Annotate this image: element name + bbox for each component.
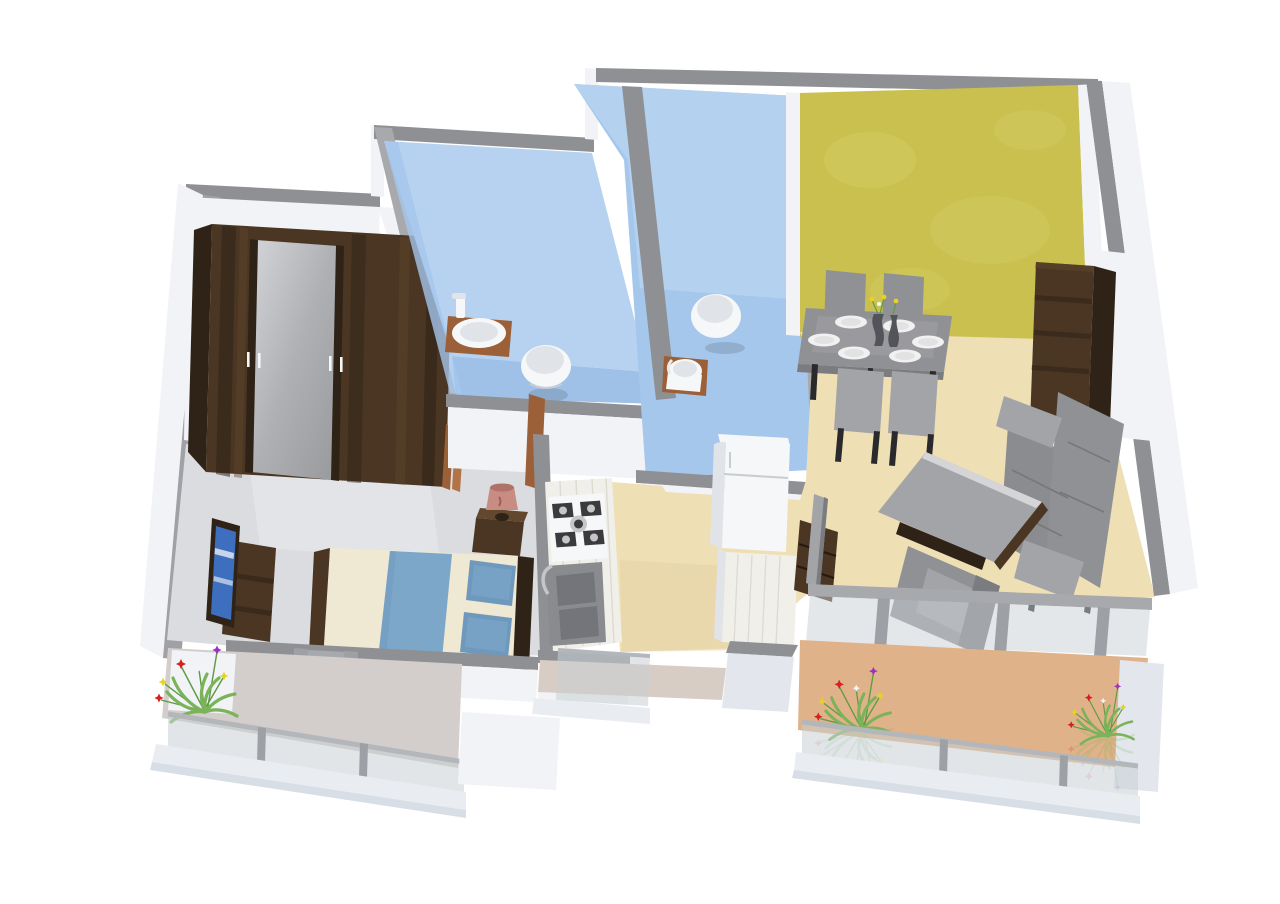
balcony-left xyxy=(150,646,466,819)
basin-faucet xyxy=(456,296,465,318)
divider-block xyxy=(458,712,560,790)
railing-post xyxy=(359,743,368,778)
wardrobe-mirror xyxy=(251,240,338,480)
balcony-right xyxy=(792,640,1164,824)
service-counter xyxy=(714,548,798,646)
wardrobe-handle xyxy=(329,356,332,371)
dining-chair xyxy=(888,371,938,437)
railing-post xyxy=(257,727,266,762)
kitchen-sink xyxy=(543,562,606,646)
washbasin-stand xyxy=(662,356,708,396)
dining-chair xyxy=(834,368,884,434)
railing-post xyxy=(939,739,948,776)
railing-post xyxy=(1059,755,1068,790)
wardrobe-handle xyxy=(247,352,250,367)
wardrobe-handle xyxy=(258,353,261,368)
wardrobe-handle xyxy=(340,357,343,372)
gas-hob xyxy=(548,493,608,562)
wardrobe xyxy=(188,224,452,487)
toilet xyxy=(521,345,571,402)
refrigerator xyxy=(710,434,790,552)
lamp-shade-top xyxy=(490,484,514,492)
floor-plan-render xyxy=(0,0,1280,904)
utility-side-wall xyxy=(722,653,794,712)
glass-railing xyxy=(556,650,650,706)
